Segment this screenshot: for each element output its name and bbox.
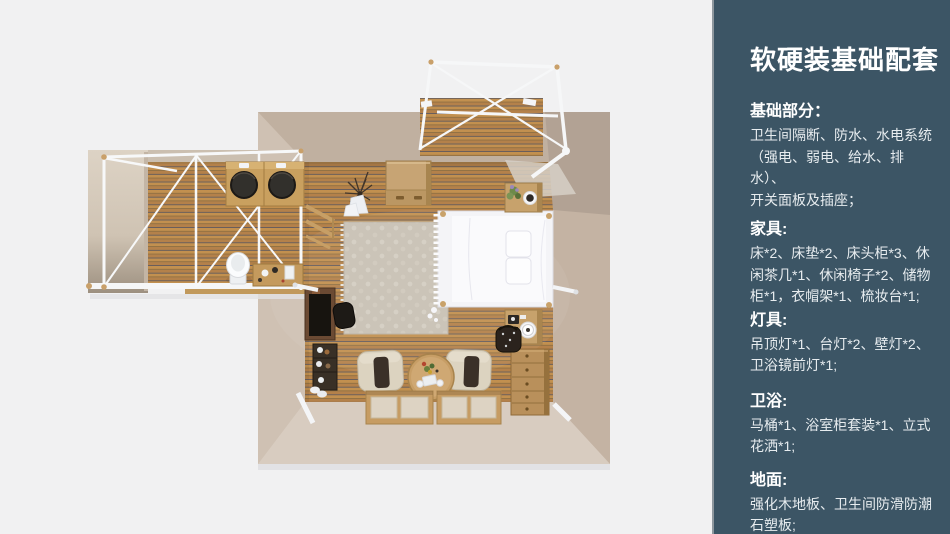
- section-body: 床*2、床垫*2、床头柜*3、休 闲茶几*1、休闲椅子*2、储物 柜*1，衣帽架…: [750, 243, 934, 308]
- spec-section-bathroom: 卫浴: 马桶*1、浴室柜套装*1、立式 花洒*1;: [750, 391, 934, 458]
- building-shadow: [258, 464, 610, 470]
- panel-title: 软硬装基础配套: [750, 44, 934, 76]
- spec-section-furniture: 家具: 床*2、床垫*2、床头柜*3、休 闲茶几*1、休闲椅子*2、储物 柜*1…: [750, 219, 934, 308]
- section-heading: 基础部分：: [750, 101, 934, 123]
- double-bed: [428, 211, 554, 322]
- laundry-basket: [496, 326, 521, 352]
- spec-section-basics: 基础部分： 卫生间隔断、防水、水电系统 （强电、弱电、给水、排水）、 开关面板及…: [750, 101, 934, 211]
- section-heading: 家具:: [750, 219, 934, 241]
- section-heading: 灯具:: [750, 310, 934, 332]
- spec-section-flooring: 地面: 强化木地板、卫生间防滑防潮 石塑板;: [750, 470, 934, 534]
- chair-cushion: [373, 357, 390, 389]
- info-panel: 软硬装基础配套 基础部分： 卫生间隔断、防水、水电系统 （强电、弱电、给水、排水…: [712, 0, 950, 534]
- floor-mats: [366, 391, 501, 424]
- dresser: [511, 349, 549, 415]
- section-body: 卫生间隔断、防水、水电系统 （强电、弱电、给水、排水）、 开关面板及插座；: [750, 125, 934, 211]
- nightstand-top: [505, 183, 542, 212]
- pillow: [506, 231, 531, 257]
- section-body: 吊顶灯*1、台灯*2、壁灯*2、 卫浴镜前灯*1;: [750, 334, 934, 377]
- twin-sinks: [226, 162, 304, 206]
- slide: 软硬装基础配套 基础部分： 卫生间隔断、防水、水电系统 （强电、弱电、给水、排水…: [0, 0, 950, 534]
- section-heading: 地面:: [750, 470, 934, 492]
- annex-left-wall: [88, 150, 148, 293]
- pillow: [506, 258, 531, 284]
- section-heading: 卫浴:: [750, 391, 934, 413]
- shoe-shelf: [310, 344, 337, 398]
- desk-chair: [332, 301, 356, 329]
- spec-section-lighting: 灯具: 吊顶灯*1、台灯*2、壁灯*2、 卫浴镜前灯*1;: [750, 310, 934, 377]
- floor-plan-render: [0, 0, 712, 534]
- deck-floor: [420, 98, 543, 156]
- chair-cushion: [463, 356, 479, 388]
- section-body: 强化木地板、卫生间防滑防潮 石塑板;: [750, 494, 934, 534]
- storage-cabinet: [386, 161, 431, 205]
- armchair-left: [357, 350, 404, 392]
- corner-wall-block: [545, 112, 610, 215]
- section-body: 马桶*1、浴室柜套装*1、立式 花洒*1;: [750, 415, 934, 458]
